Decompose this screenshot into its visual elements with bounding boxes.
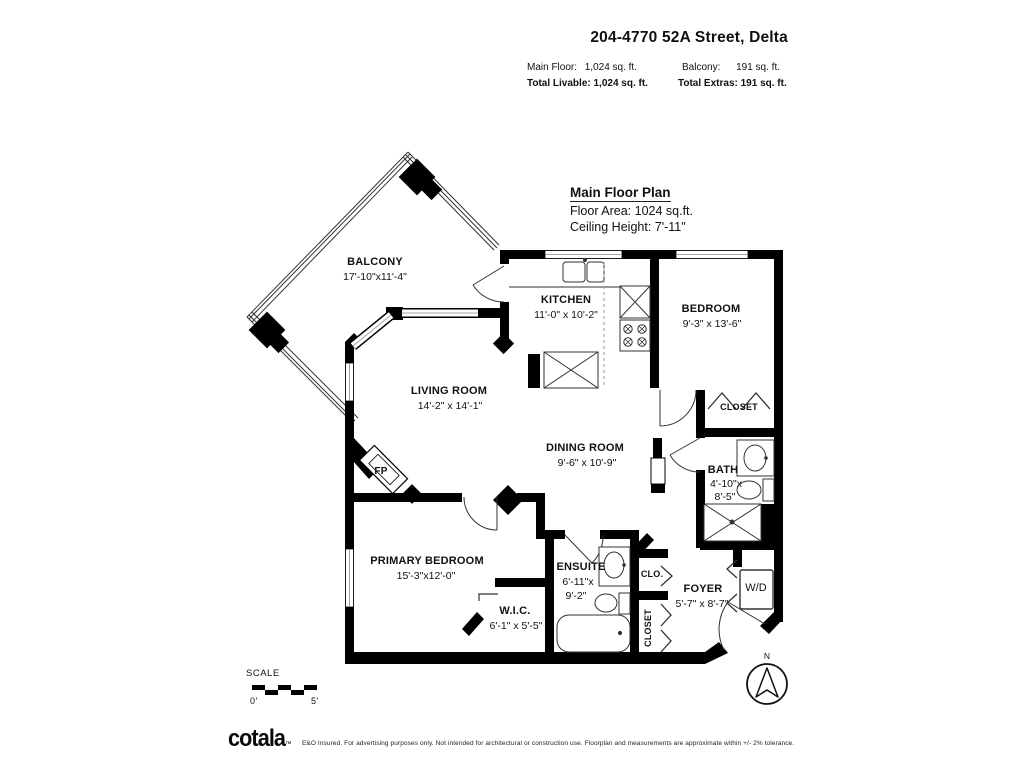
foyer-label: FOYER [684,583,723,595]
balcony-stat: Balcony: 191 sq. ft. [682,62,780,73]
balcony-dims: 17'-10"x11'-4" [343,271,407,283]
compass-north-label: N [764,651,770,661]
kitchen-sink [563,262,585,282]
hall-half-wall [651,458,665,484]
bath-toilet [763,479,774,501]
cotala-logo-text: cotala [228,725,285,752]
foyer-dims: 5'-7" x 8'-7" [676,598,729,610]
plan-info-block: Main Floor Plan Floor Area: 1024 sq.ft. … [570,184,693,234]
wic-dims: 6'-1" x 5'-5" [490,620,543,632]
plan-title: Main Floor Plan [570,185,671,202]
balcony-railing [247,152,499,423]
bath-label: BATH [708,464,739,476]
cotala-logo-mark: ™ [285,741,290,748]
ensuite-label: ENSUITE [556,561,605,573]
primary-bedroom-label: PRIMARY BEDROOM [370,555,484,567]
main-floor-value: 1,024 sq. ft. [585,62,637,73]
kitchen-dims: 11'-0" x 10'-2" [534,309,598,321]
clo-label: CLO. [641,569,663,579]
wic-label: W.I.C. [499,605,530,617]
ensuite-toilet [619,593,630,614]
bedroom-closet-label: CLOSET [720,402,758,412]
balcony-label: BALCONY [347,256,403,268]
balcony-stat-label: Balcony: [682,62,720,73]
main-floor-label: Main Floor: [527,62,577,73]
cotala-logo: cotala™ [228,725,290,753]
scale-end: 5' [311,696,319,706]
balcony-stat-value: 191 sq. ft. [736,62,780,73]
total-extras: Total Extras: 191 sq. ft. [678,78,787,89]
ensuite-dims-2: 9'-2" [566,590,587,602]
bath-dims-1: 4'-10"x [710,478,742,490]
floor-plan-canvas [0,0,1024,768]
stove [620,320,650,351]
washer-dryer-label: W/D [745,582,766,594]
plan-ceiling-height: Ceiling Height: 7'-11" [570,220,693,234]
plan-floor-area: Floor Area: 1024 sq.ft. [570,204,693,218]
balcony-corner-posts [249,159,442,353]
dining-room-label: DINING ROOM [546,442,624,454]
total-livable: Total Livable: 1,024 sq. ft. [527,78,648,89]
primary-bedroom-dims: 15'-3"x12'-0" [397,570,456,582]
bath-dims-2: 8'-5" [715,491,736,503]
living-room-label: LIVING ROOM [411,385,487,397]
main-floor-stat: Main Floor: 1,024 sq. ft. [527,62,637,73]
floor-plan-page: 204-4770 52A Street, Delta Main Floor: 1… [0,0,1024,768]
scale-label: SCALE [246,668,280,679]
compass-icon [747,664,787,704]
living-room-dims: 14'-2" x 14'-1" [418,400,483,412]
ensuite-dims-1: 6'-11"x [562,576,593,588]
bedroom-label: BEDROOM [682,303,741,315]
foyer-closet-label: CLOSET [643,609,653,647]
fireplace-label: FP [374,466,387,477]
wic-rod [479,594,498,601]
disclaimer-text: E&O Insured. For advertising purposes on… [302,740,794,747]
bedroom-dims: 9'-3" x 13'-6" [683,318,742,330]
scale-start: 0' [250,696,258,706]
dining-room-dims: 9'-6" x 10'-9" [558,457,617,469]
scale-bar [252,685,317,695]
kitchen-label: KITCHEN [541,294,591,306]
property-address-title: 204-4770 52A Street, Delta [590,29,788,47]
